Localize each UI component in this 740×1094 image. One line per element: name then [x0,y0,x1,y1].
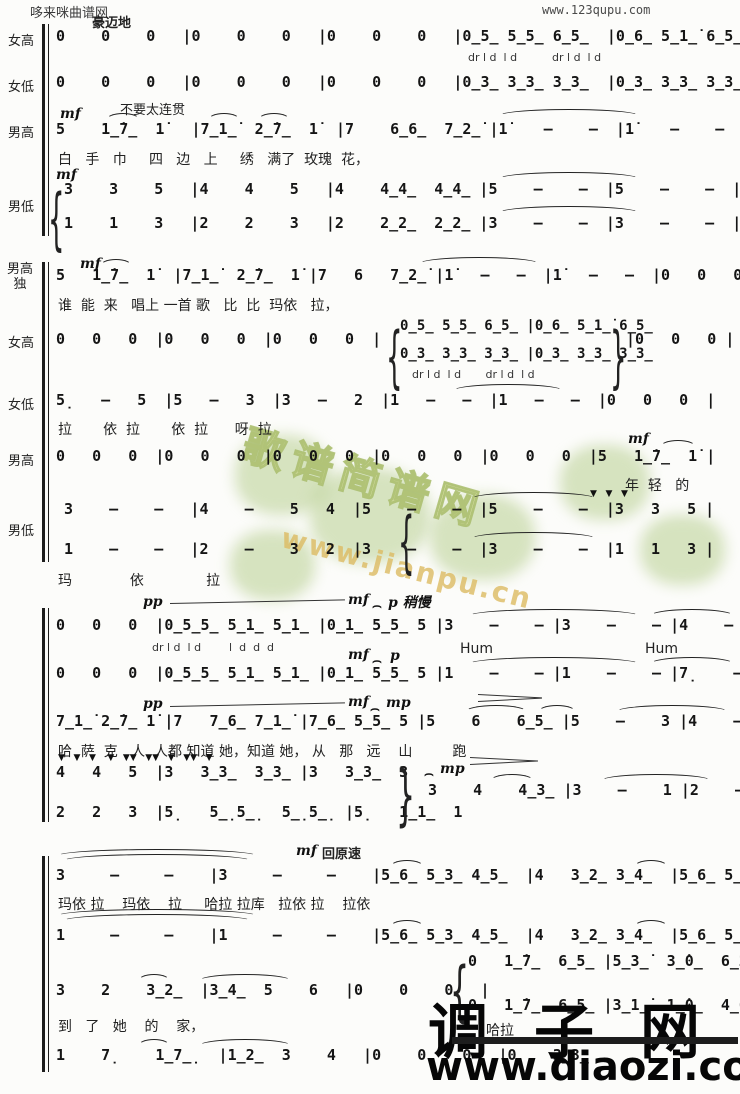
tie-arc [470,532,597,546]
s2-tenor-dynamic: mf [628,431,649,447]
tie-arc [498,206,640,220]
tie-arc [452,384,564,398]
s2-tenor-lyrics: 年 轻 的 [625,475,689,495]
s2-alto-lyrics: 拉 依 拉 依 拉 呀 拉 [58,419,272,439]
bass-merge-brace: { [398,505,415,583]
s1-tenor-notes: 5 1̲̇7̲ 1̇ |7̲1̲̇ 2̲̇7̲ 1̇ |7 6̲6̲ 7̲2̲̇… [56,120,740,138]
s2-bass-lyrics: 玛 依 拉 [58,570,220,590]
tie-arc [498,109,640,123]
s3-soprano-mf: mf [348,592,369,608]
tie-arc [615,705,729,719]
tie-arc [468,657,640,671]
s3-soprano-hum2: Hum [645,641,678,657]
tie-arc [468,609,640,623]
s2-solo-lyrics: 谁 能 来 唱上 一首 歌 比 比 玛依 拉， [58,295,339,315]
s1-tenor-lyrics: 白 手 巾 四 边 上 绣 满了 玫瑰 花， [58,149,369,169]
system4-left-barline-thin [48,856,49,1072]
slur-arc [208,113,240,127]
s2-solo-notes: 5 1̲̇7̲ 1̇ |7̲1̲̇ 2̲̇7̲ 1̇ |7 6 7̲2̲̇ |1… [56,266,740,284]
system2-left-barline [42,262,45,562]
voice-label-bass: 男低 [8,520,34,539]
s3-tenor-pp: pp [143,696,163,712]
slur-arc [465,705,527,719]
s4-tenor-lyrics: 到 了 她 的 家， [58,1016,204,1036]
system4-left-barline [42,856,45,1072]
system3-left-barline [42,608,45,822]
tie-arc [470,492,597,506]
bass-merge-brace: } [396,758,415,835]
s2-bass-upper-notes: 3 – – |4 – 5 4 |5 – – |5 – – |3 3 5 | [64,500,714,518]
s3-tenor-mp: mp [386,695,411,711]
header-site-url: www.123qupu.com [542,3,650,17]
voice-label-alto: 女低 [8,76,34,95]
slur-arc [634,860,668,874]
slur-arc [490,774,534,788]
s3-soprano-pp: pp [143,594,163,610]
voice-label-tenor-solo: 男高独 [4,262,36,292]
slur-arc [100,259,132,273]
tie-arc [418,257,540,271]
diaozi-logo-bar [452,1037,738,1044]
fermata-icon: ⌢ [372,596,382,614]
slur-arc [138,974,170,988]
system1-left-barline [42,24,45,236]
voice-label-tenor: 男高 [8,122,34,141]
sheet-music-page: 哆来咪曲谱网 www.123qupu.com 歌谱简谱网 www.jianpu.… [0,0,740,1094]
slur-arc [634,920,668,934]
s3-bass-accents: ▼ ▼ ▼ ▼ ▼▼ ▼▼ ▼ ▼▼ ▼ [58,753,213,763]
s3-alto-mf: mf [348,647,369,663]
decrescendo-line [470,760,538,765]
slur-arc [660,440,696,454]
system3-left-barline-thin [48,608,49,822]
s2-tenor-notes: 0 0 0 |0 0 0 |0 0 0 |0 0 0 |0 0 0 |5 1̲̇… [56,447,715,465]
voice-label-bass: 男低 [8,196,34,215]
decrescendo-line [478,698,542,703]
s1-soprano-notes: 0 0 0 |0 0 0 |0 0 0 |0̲5̲ 5̲5̲ 6̲5̲ |0̲6… [56,27,740,45]
chord-brace-close: } [610,320,627,398]
slur-arc [390,920,424,934]
slur-arc [198,974,292,988]
tie-arc [650,657,734,671]
s4-tempo-dynamic: mf [296,843,317,859]
s1-bass-upper-notes: 3 3 5 |4 4 5 |4 4̲4̲ 4̲4̲ |5 – – |5 – – … [64,180,740,198]
s1-alto-notes: 0 0 0 |0 0 0 |0 0 0 |0̲3̲ 3̲3̲ 3̲3̲ |0̲3… [56,73,740,91]
s2-bass-lower-notes: 1 – – |2 – 3 2 |3 – – |3 – – |1 1 3 | [64,540,714,558]
s2-soprano-rests: 0 0 0 |0 0 0 |0 0 0 | [56,330,381,348]
bass-brace: { [48,182,65,260]
s4-women-chord-upper: 0 1̲̇7̲ 6̲5̲ |5̲3̲̇ 3̲̇0̲ 6̲2̲̇ | [468,952,740,970]
s2-soprano-rests-end: |0 0 0 | [626,330,734,348]
voice-label-tenor: 男高 [8,450,34,469]
tie-arc [650,609,734,623]
fermata-icon: ⌢ [424,764,434,782]
s1-bass-lower-notes: 1 1 3 |2 2 3 |2 2̲2̲ 2̲2̲ |3 – – |3 – – … [64,214,740,232]
s1-soprano-solfege: dr l d l d dr l d l d [468,51,601,64]
slur-arc [258,113,290,127]
s4-tempo-text: 回原速 [322,843,361,862]
s3-soprano-notes: 0 0 0 |0̲5̲5̲ 5̲1̲ 5̲1̲ |0̲1̲ 5̲5̲ 5 |3 … [56,616,740,634]
system2-left-barline-thin [48,262,49,562]
s3-alto-p: p [390,648,400,664]
s3-bass-upper-notes: 4 4 5 |3 3̲3̲ 3̲3̲ |3 3̲3̲ 3 [56,763,408,781]
s3-bass-mp: mp [440,761,465,777]
s3-soprano-hum1: Hum [460,641,493,657]
slur-arc [106,113,140,127]
crescendo-line [170,702,345,707]
s2-alto-notes: 5̣ – 5 |5 – 3 |3 – 2 |1 – – |1 – – |0 0 … [56,391,715,409]
voice-label-soprano: 女高 [8,30,34,49]
s3-alto-notes: 0 0 0 |0̲5̲5̲ 5̲1̲ 5̲1̲ |0̲1̲ 5̲5̲ 5 |1 … [56,664,740,682]
diaozi-logo-url: www.diaozi.com [426,1044,740,1090]
s3-tenor-mf: mf [348,694,369,710]
slur-arc [198,1039,292,1053]
slur-arc [138,1039,170,1053]
voice-label-alto: 女低 [8,394,34,413]
s3-soprano-slower: p 稍慢 [388,592,431,612]
tie-arc [498,172,640,186]
tie-arc [600,774,712,788]
voice-label-soprano: 女高 [8,332,34,351]
slur-arc [390,860,424,874]
slur-arc [538,705,576,719]
s2-soprano-solfege: dr l d l d dr l d l d [412,368,535,381]
s3-soprano-solfege: dr l d l d l d d d [152,641,274,654]
crescendo-line [170,599,345,604]
